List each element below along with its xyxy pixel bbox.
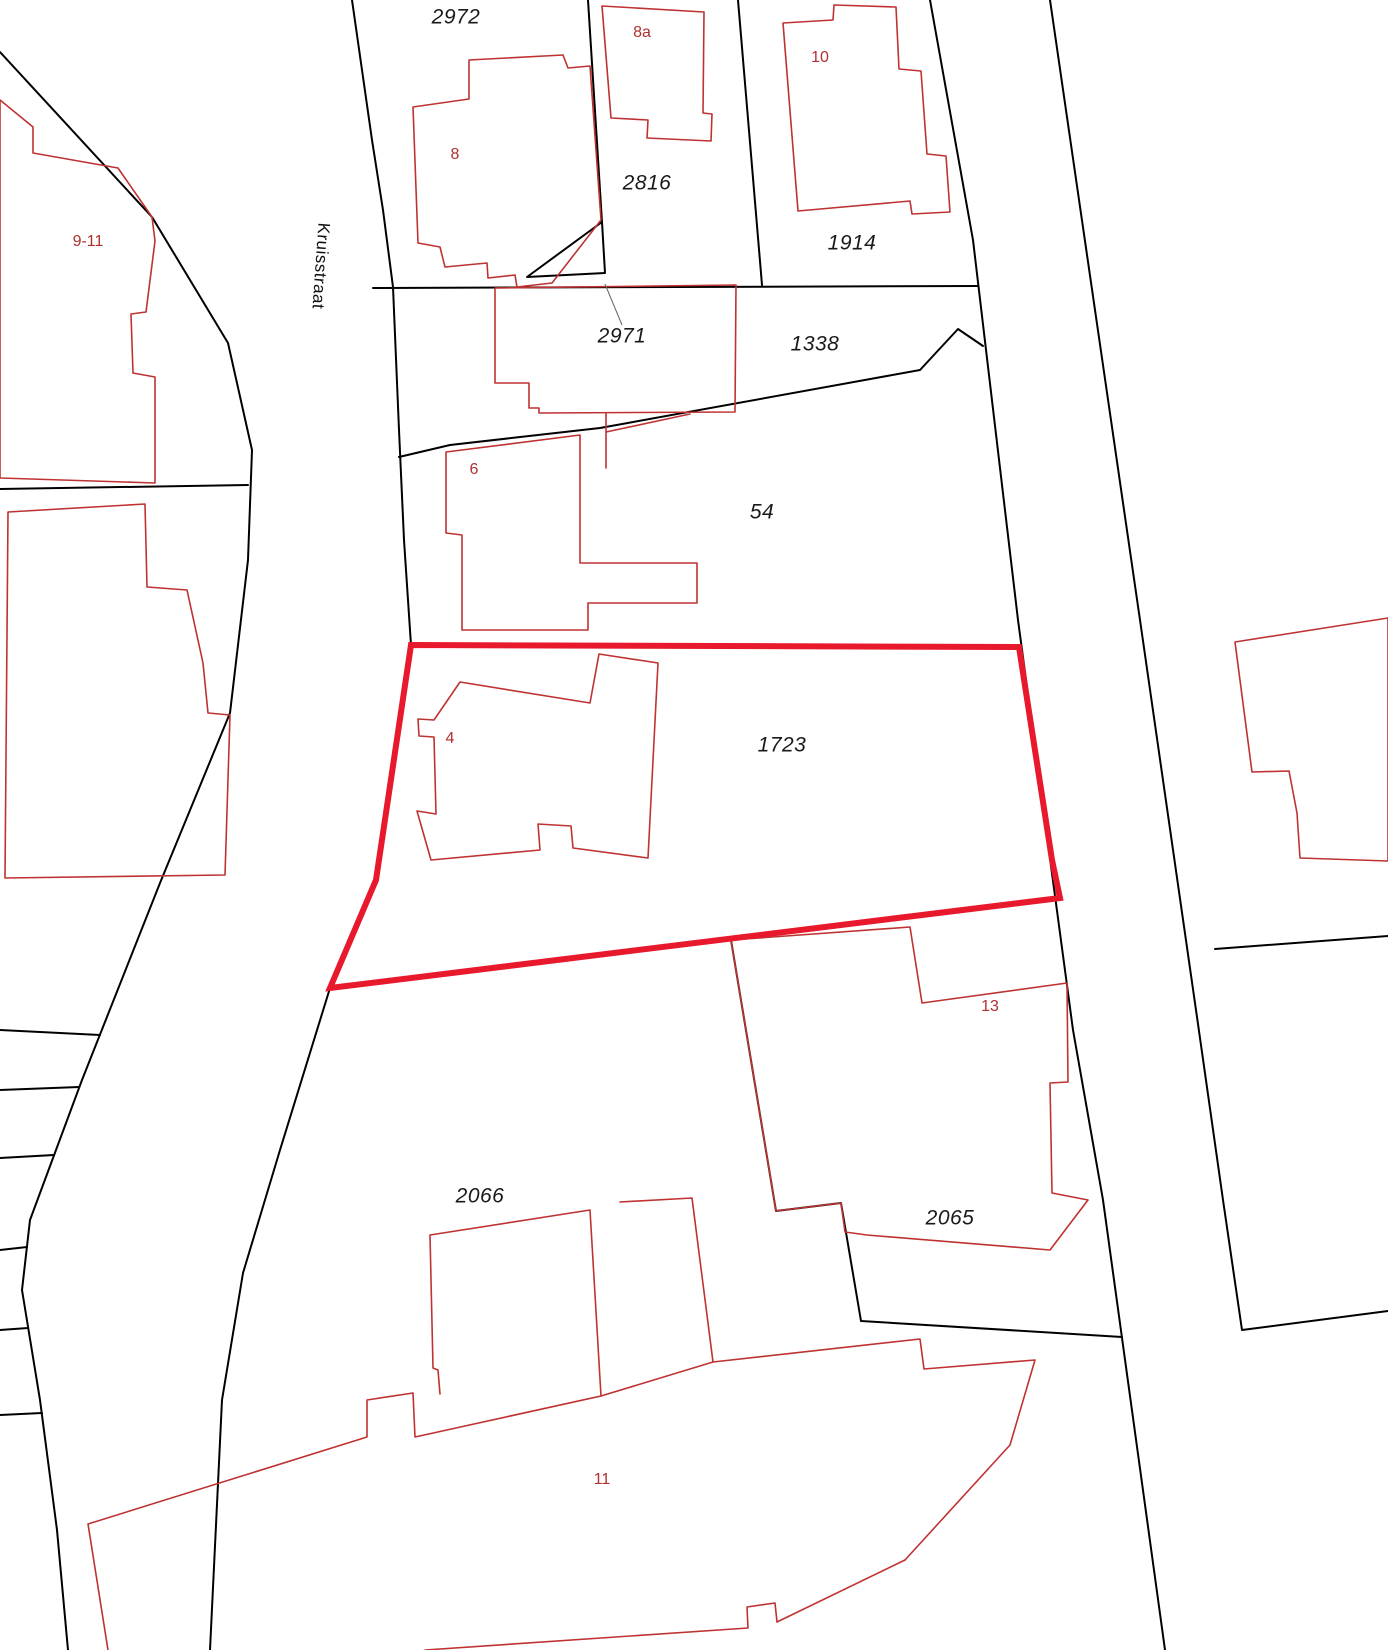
boundary-east-branch xyxy=(1215,936,1388,949)
building-outlines xyxy=(0,5,1388,1650)
parcel-boundary-lines xyxy=(0,0,1388,1650)
boundary-2972-2816 xyxy=(588,0,602,222)
building-9-11-outline xyxy=(0,100,155,483)
boundary-left-strips xyxy=(0,1030,100,1415)
road-edge-inner-lower xyxy=(210,988,330,1650)
building-2971-annex xyxy=(606,413,690,468)
boundary-2816-1914 xyxy=(738,0,762,285)
building-left-outline xyxy=(5,504,230,878)
cadastral-map: Kruisstraat 2972281619142971133854172320… xyxy=(0,0,1388,1650)
road-edge-outer-left xyxy=(0,52,252,1650)
building-6-outline xyxy=(446,435,697,630)
road-right-edge-b xyxy=(1050,0,1388,1330)
building-13-outline xyxy=(731,927,1088,1250)
highlighted-parcel-1723 xyxy=(330,645,1060,988)
building-11-eastwing-outline xyxy=(620,1198,1035,1560)
road-edge-inner-upper xyxy=(352,0,411,645)
building-10-outline xyxy=(783,5,950,214)
boundary-54-north xyxy=(399,329,983,457)
building-8a-outline xyxy=(602,6,712,141)
building-8-outline xyxy=(413,55,601,287)
building-2066-tall-outline xyxy=(430,1210,601,1396)
building-2971-outline xyxy=(495,285,736,413)
label-leader-2971 xyxy=(605,284,622,325)
boundary-left-block xyxy=(0,485,248,489)
building-4-outline xyxy=(417,654,658,860)
building-11-slab-outline xyxy=(88,1362,905,1650)
building-east-outline xyxy=(1235,618,1388,861)
boundary-2066-2065 xyxy=(731,940,1122,1337)
map-canvas xyxy=(0,0,1388,1650)
